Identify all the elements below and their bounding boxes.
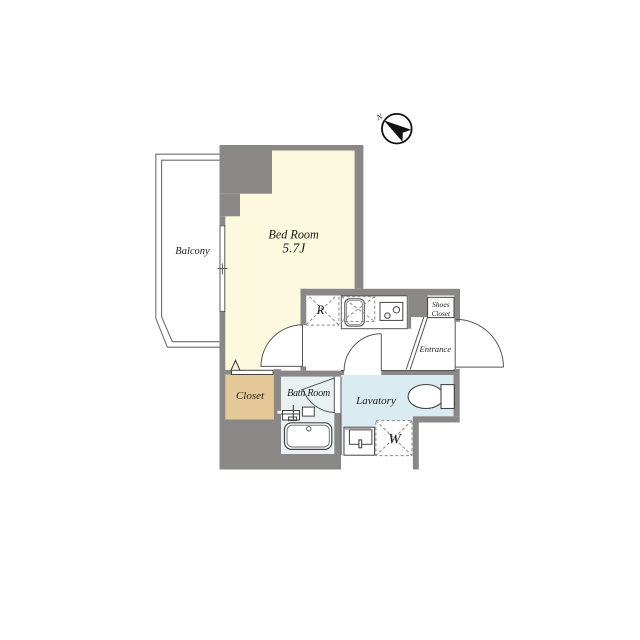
svg-text:Balcony: Balcony: [175, 246, 210, 257]
svg-text:Lavatory: Lavatory: [355, 395, 396, 407]
svg-text:Shoes: Shoes: [432, 300, 450, 309]
svg-text:R: R: [316, 303, 325, 317]
svg-text:Entrance: Entrance: [419, 344, 452, 354]
svg-text:Bath Room: Bath Room: [287, 388, 330, 399]
svg-text:N: N: [374, 112, 384, 123]
svg-text:Bed Room: Bed Room: [268, 227, 319, 241]
svg-text:Closet: Closet: [432, 310, 451, 318]
svg-text:Closet: Closet: [236, 390, 265, 402]
svg-text:W: W: [388, 432, 402, 448]
svg-text:5.7J: 5.7J: [282, 241, 306, 256]
